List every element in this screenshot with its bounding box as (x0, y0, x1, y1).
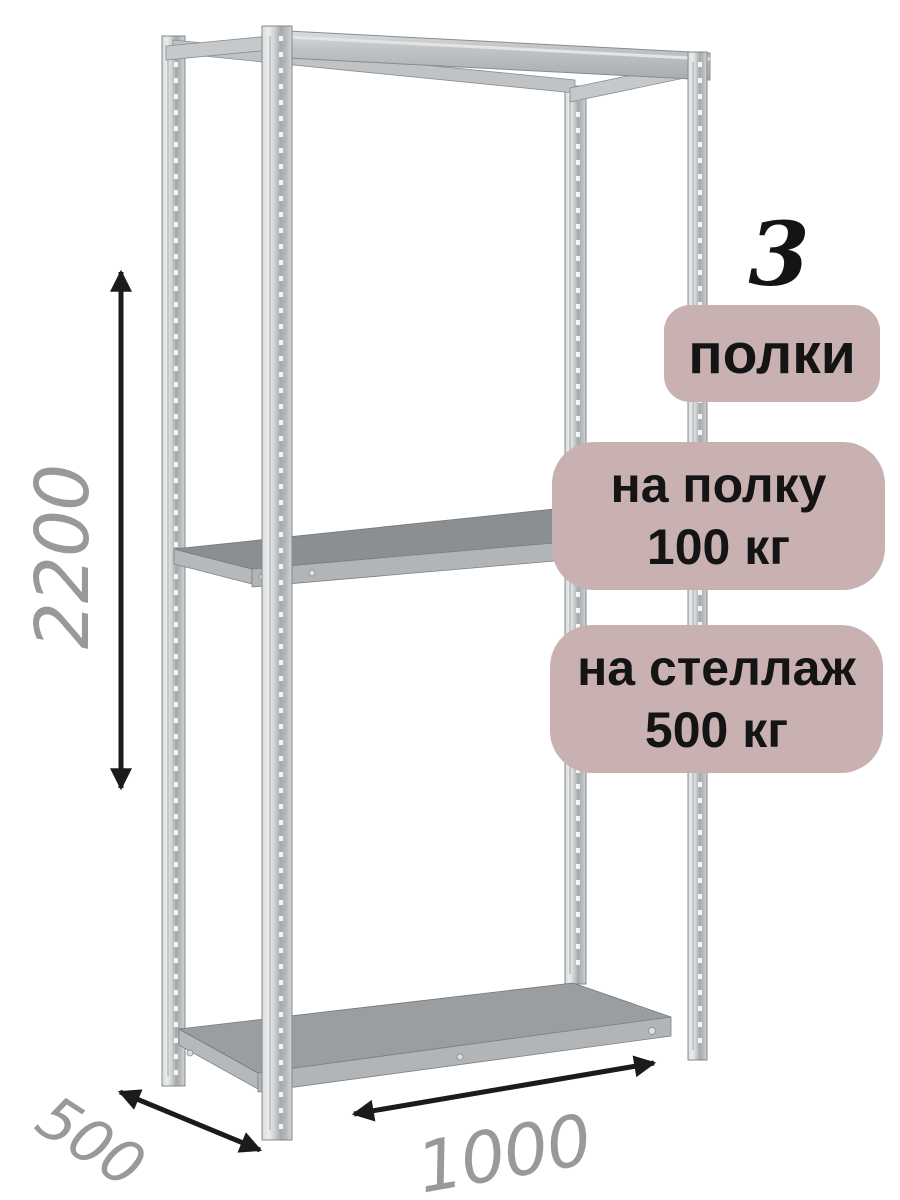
per-shelf-load-line1: на полку (611, 454, 827, 516)
per-shelf-load-badge: на полку 100 кг (552, 442, 885, 590)
height-dimension-label: 2200 (21, 407, 105, 707)
product-card: 2200 500 1000 3 полки на полку 100 кг на… (0, 0, 900, 1200)
per-rack-load-line1: на стеллаж (577, 637, 856, 699)
per-rack-load-line2: 500 кг (645, 699, 788, 761)
rack-illustration (0, 0, 900, 1200)
shelf-count-badge: полки (664, 305, 880, 402)
shelf-count-number: 3 (709, 198, 849, 310)
per-rack-load-badge: на стеллаж 500 кг (550, 625, 883, 773)
bottom-shelf (179, 983, 671, 1092)
per-shelf-load-line2: 100 кг (647, 516, 790, 578)
shelf-count-badge-label: полки (688, 321, 856, 387)
